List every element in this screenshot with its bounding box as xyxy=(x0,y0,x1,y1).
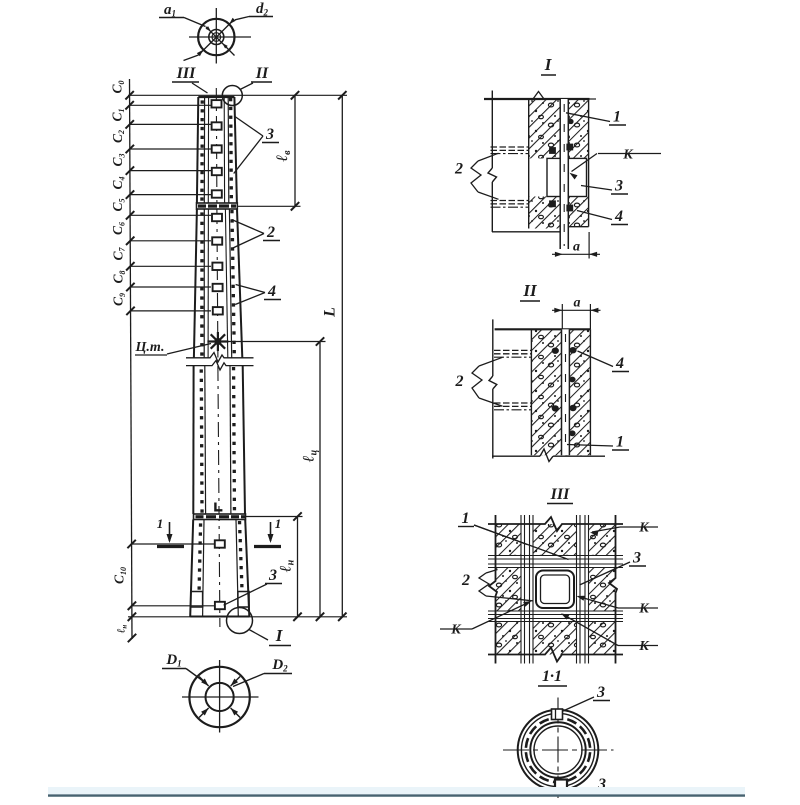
svg-text:L: L xyxy=(322,307,339,318)
svg-text:III: III xyxy=(176,65,196,82)
svg-text:К: К xyxy=(638,521,650,536)
svg-text:3: 3 xyxy=(268,567,277,584)
svg-text:3: 3 xyxy=(614,178,623,195)
svg-text:II: II xyxy=(255,65,269,82)
svg-text:К: К xyxy=(450,623,462,638)
svg-text:II: II xyxy=(522,281,538,300)
svg-text:2: 2 xyxy=(461,572,470,589)
svg-text:2: 2 xyxy=(454,161,463,178)
svg-text:4: 4 xyxy=(614,208,623,225)
svg-text:4: 4 xyxy=(615,355,624,372)
svg-text:2: 2 xyxy=(455,373,464,390)
svg-text:3: 3 xyxy=(265,126,274,143)
svg-text:a: a xyxy=(574,296,581,311)
svg-text:К: К xyxy=(638,639,650,654)
svg-text:3: 3 xyxy=(596,684,605,701)
svg-text:Ц.т.: Ц.т. xyxy=(135,340,165,355)
svg-text:3: 3 xyxy=(632,550,641,567)
svg-text:1·1: 1·1 xyxy=(542,668,562,685)
svg-text:К: К xyxy=(638,602,650,617)
svg-text:1: 1 xyxy=(462,510,470,527)
svg-text:III: III xyxy=(550,486,570,503)
svg-text:a: a xyxy=(573,240,580,255)
svg-text:1: 1 xyxy=(613,109,621,126)
svg-text:1: 1 xyxy=(616,434,624,451)
svg-text:1: 1 xyxy=(157,516,164,531)
svg-text:4: 4 xyxy=(267,283,276,300)
svg-text:К: К xyxy=(622,148,634,163)
svg-text:2: 2 xyxy=(266,224,275,241)
svg-text:1: 1 xyxy=(275,516,282,531)
